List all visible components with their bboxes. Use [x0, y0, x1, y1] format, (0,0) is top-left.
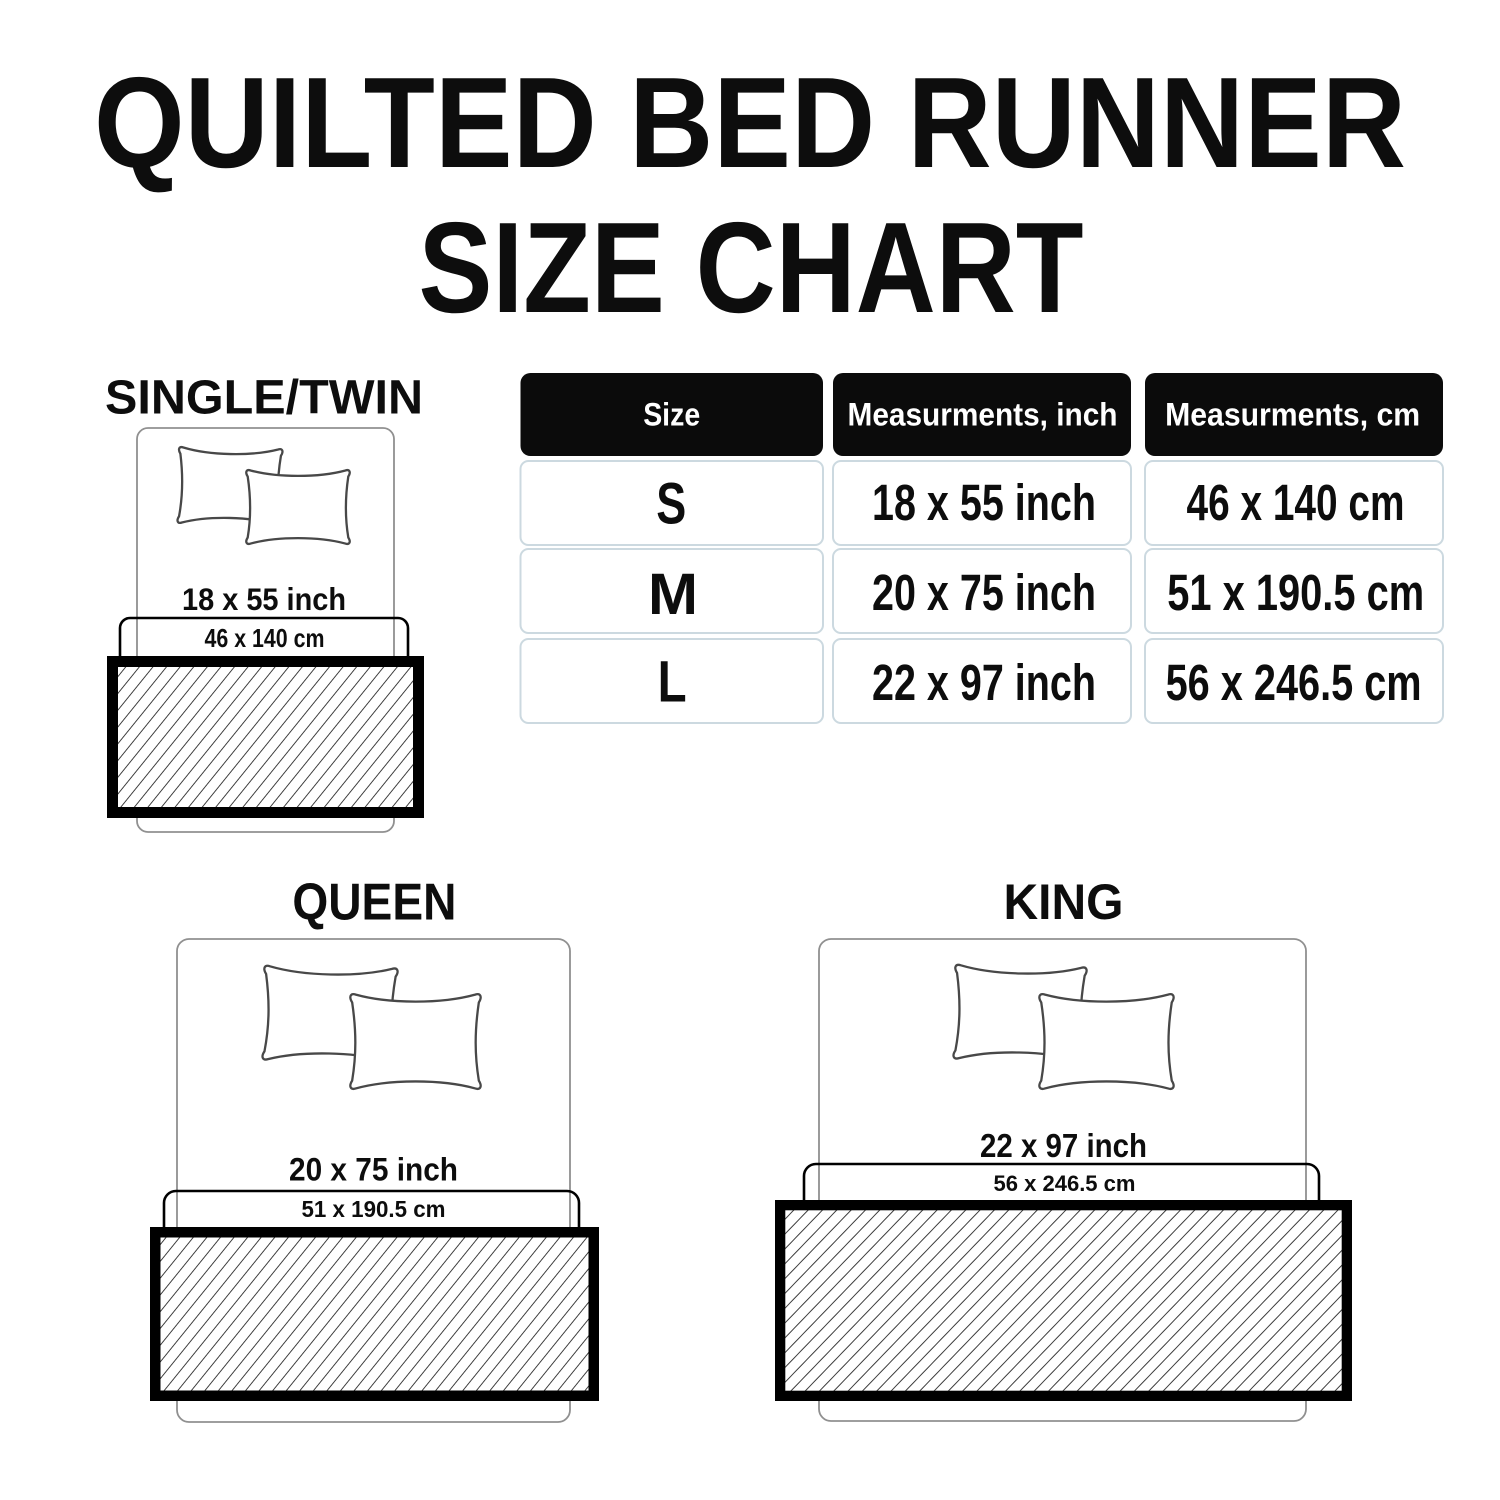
svg-text:56 x 246.5 cm: 56 x 246.5 cm	[994, 1171, 1136, 1196]
svg-text:QUEEN: QUEEN	[292, 872, 456, 930]
svg-text:20 x 75 inch: 20 x 75 inch	[872, 564, 1096, 621]
svg-text:S: S	[656, 471, 686, 536]
svg-text:22 x 97 inch: 22 x 97 inch	[980, 1127, 1147, 1164]
svg-text:22 x 97 inch: 22 x 97 inch	[872, 654, 1096, 711]
svg-text:18 x 55 inch: 18 x 55 inch	[872, 474, 1096, 531]
svg-text:L: L	[658, 650, 687, 715]
svg-text:46 x 140 cm: 46 x 140 cm	[205, 623, 325, 653]
svg-text:51 x 190.5 cm: 51 x 190.5 cm	[302, 1196, 446, 1222]
svg-text:Size: Size	[643, 396, 700, 433]
svg-text:20 x 75 inch: 20 x 75 inch	[289, 1152, 458, 1188]
svg-text:KING: KING	[1004, 874, 1124, 930]
svg-text:QUILTED BED RUNNER: QUILTED BED RUNNER	[94, 51, 1406, 195]
svg-text:56 x 246.5 cm: 56 x 246.5 cm	[1166, 654, 1422, 711]
svg-text:SINGLE/TWIN: SINGLE/TWIN	[105, 371, 423, 424]
svg-text:46 x 140 cm: 46 x 140 cm	[1187, 474, 1405, 531]
svg-text:M: M	[648, 562, 698, 627]
svg-text:Measurments, cm: Measurments, cm	[1165, 396, 1420, 433]
svg-text:18 x 55 inch: 18 x 55 inch	[182, 582, 346, 617]
svg-text:Measurments, inch: Measurments, inch	[848, 396, 1118, 433]
svg-text:SIZE CHART: SIZE CHART	[419, 196, 1084, 340]
svg-text:51 x 190.5 cm: 51 x 190.5 cm	[1167, 564, 1424, 621]
